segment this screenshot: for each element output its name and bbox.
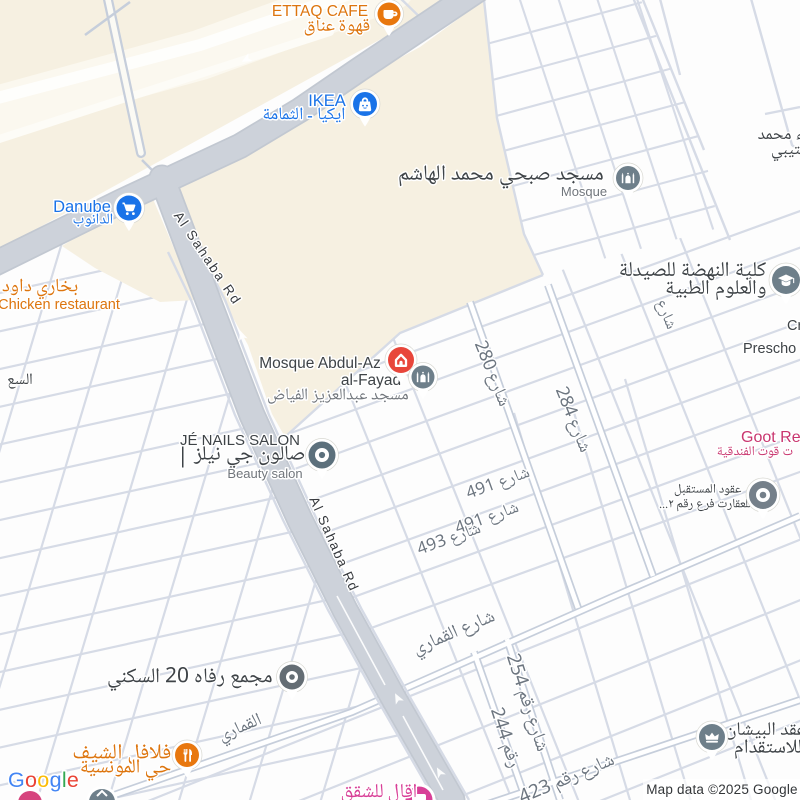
svg-text:Chicken restaurant: Chicken restaurant xyxy=(0,297,120,313)
svg-text:Beauty salon: Beauty salon xyxy=(227,466,302,481)
svg-text:Google: Google xyxy=(8,768,79,792)
svg-text:Goot Re: Goot Re xyxy=(741,429,800,446)
svg-text:Danube: Danube xyxy=(53,198,111,216)
svg-text:al-Fayad: al-Fayad xyxy=(341,372,401,389)
svg-text:Cr: Cr xyxy=(787,318,800,334)
svg-text:Mosque Abdul-Az: Mosque Abdul-Az xyxy=(259,355,381,372)
svg-text:Mosque: Mosque xyxy=(561,184,607,199)
svg-text:Prescho: Prescho xyxy=(743,341,796,357)
svg-text:Map data ©2025 Google: Map data ©2025 Google xyxy=(646,782,798,797)
svg-text:IKEA: IKEA xyxy=(308,92,346,110)
svg-text:JÉ NAILS SALON: JÉ NAILS SALON xyxy=(180,432,300,449)
svg-text:ETTAQ CAFE: ETTAQ CAFE xyxy=(272,3,368,20)
